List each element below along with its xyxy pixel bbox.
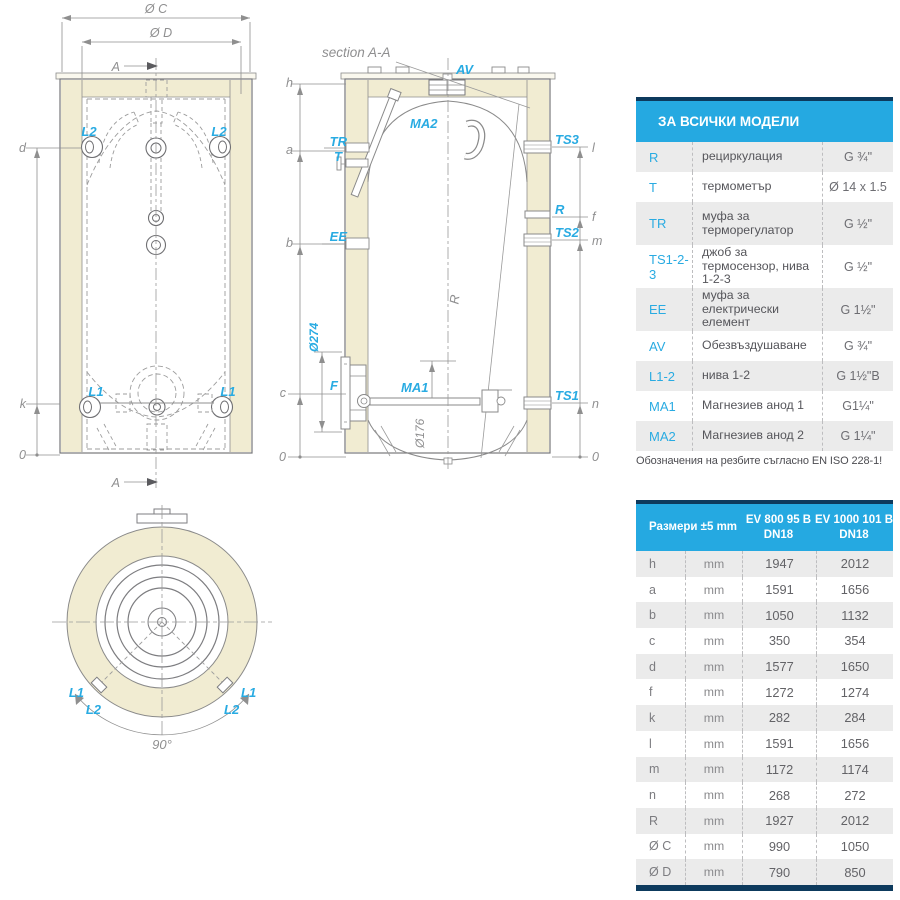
ts1-label: TS1	[555, 388, 579, 403]
value-ev1000: 850	[817, 859, 893, 885]
port-description: Магнезиев анод 1	[693, 391, 823, 421]
port-bottom-center-bore	[154, 404, 161, 411]
table-row: R рециркулация G ¾"	[636, 142, 893, 172]
port-thread-size: G ¾"	[823, 142, 893, 172]
table-row: T термометър Ø 14 x 1.5	[636, 172, 893, 202]
value-ev1000: 1656	[817, 731, 893, 757]
arrow	[297, 86, 303, 95]
port-description: нива 1-2	[693, 361, 823, 391]
ports-table-header: ЗА ВСИЧКИ МОДЕЛИ	[636, 101, 893, 142]
dim-f-label: f	[592, 210, 597, 224]
value-ev1000: 1050	[817, 834, 893, 860]
value-ev1000: 354	[817, 628, 893, 654]
dim-d-label: d	[19, 141, 27, 155]
dimension-unit: mm	[686, 628, 743, 654]
top-caps	[368, 67, 529, 73]
arrow	[34, 405, 40, 414]
dimension-letter: f	[636, 679, 686, 705]
dimension-unit: mm	[686, 782, 743, 808]
dim-176-label: Ø176	[413, 418, 427, 449]
arrow	[232, 39, 241, 45]
value-ev1000: 272	[817, 782, 893, 808]
dimension-letter: m	[636, 757, 686, 783]
port-thread-size: G1¼"	[823, 391, 893, 421]
dim-dot	[298, 455, 301, 458]
table-row: TR муфа за терморегулатор G ½"	[636, 202, 893, 245]
header-model-ev1000: EV 1000 101 B DN18	[815, 504, 893, 551]
dim-b-label: b	[286, 236, 293, 250]
port-thread-size: Ø 14 x 1.5	[823, 172, 893, 202]
section-title: section A-A	[322, 45, 391, 60]
port-thread-size: G ¾"	[823, 331, 893, 361]
value-ev800: 1050	[743, 602, 817, 628]
dimension-letter: a	[636, 577, 686, 603]
thread-standard-note: Обозначения на резбите съгласно EN ISO 2…	[636, 455, 882, 467]
port-thread-size: G ½"	[823, 245, 893, 288]
ts3-label: TS3	[555, 132, 580, 147]
pocket-body	[482, 390, 498, 412]
table-row: EE муфа за електрически елемент G 1½"	[636, 288, 893, 331]
port-code: MA2	[636, 421, 693, 451]
table-row: b mm 1050 1132	[636, 602, 893, 628]
dim-m-label: m	[592, 234, 602, 248]
table-row: AV Обезвъздушаване G ¾"	[636, 331, 893, 361]
table-row: a mm 1591 1656	[636, 577, 893, 603]
header-dimensions: Размери ±5 mm	[636, 504, 742, 551]
tr-flange	[346, 143, 369, 152]
insulation-left	[61, 80, 82, 452]
section-label-top: A	[111, 60, 120, 74]
dim-dot	[578, 455, 581, 458]
value-ev800: 282	[743, 705, 817, 731]
dimensions-table-body: h mm 1947 2012 a mm 1591 1656 b mm 1050 …	[636, 551, 893, 885]
ma2-label: MA2	[410, 116, 438, 131]
port-l1-left-bore	[84, 401, 92, 413]
port-description: рециркулация	[693, 142, 823, 172]
arrow	[319, 421, 325, 430]
arrow	[297, 396, 303, 405]
value-ev800: 1927	[743, 808, 817, 834]
dim-zero-right-label: 0	[592, 450, 599, 464]
cap	[518, 67, 529, 73]
ts2-flange	[524, 234, 551, 246]
table-row: Ø D mm 790 850	[636, 859, 893, 885]
t-label: T	[334, 149, 343, 164]
f-label: F	[330, 378, 339, 393]
port-thread-size: G ½"	[823, 202, 893, 245]
value-ev800: 268	[743, 782, 817, 808]
table-row: k mm 282 284	[636, 705, 893, 731]
value-ev1000: 1656	[817, 577, 893, 603]
l2-label-right: L2	[211, 124, 227, 139]
table-row: c mm 350 354	[636, 628, 893, 654]
arrow	[82, 39, 91, 45]
l2-label-left: L2	[81, 124, 97, 139]
l1-label-right: L1	[241, 685, 256, 700]
av-cap	[443, 74, 452, 80]
port-description: джоб за термосензор, нива 1-2-3	[693, 245, 823, 288]
value-ev1000: 1174	[817, 757, 893, 783]
table-row: MA2 Магнезиев анод 2 G 1¼"	[636, 421, 893, 451]
l1-label-left: L1	[69, 685, 84, 700]
table-bottom-bar	[636, 885, 893, 891]
dim-n-label: n	[592, 397, 599, 411]
header-model-ev800: EV 800 95 B DN18	[742, 504, 815, 551]
f-flange-body	[350, 365, 366, 421]
port-description: Магнезиев анод 2	[693, 421, 823, 451]
table-row: n mm 268 272	[636, 782, 893, 808]
av-label: AV	[455, 62, 474, 77]
value-ev800: 990	[743, 834, 817, 860]
dimension-unit: mm	[686, 577, 743, 603]
value-ev1000: 2012	[817, 551, 893, 577]
ee-flange	[346, 238, 369, 249]
l2-label-left: L2	[86, 702, 102, 717]
port-code: MA1	[636, 391, 693, 421]
ts2-label: TS2	[555, 225, 580, 240]
value-ev800: 1577	[743, 654, 817, 680]
arrow	[297, 153, 303, 162]
l1-label-right: L1	[220, 384, 235, 399]
r-flange	[525, 211, 550, 218]
dimension-letter: n	[636, 782, 686, 808]
port-thread-size: G 1¼"	[823, 421, 893, 451]
dimension-unit: mm	[686, 679, 743, 705]
front-view: Ø C Ø D A A L2 L2 L1 L1 d k 0	[19, 2, 256, 490]
table-row: L1-2 нива 1-2 G 1½"B	[636, 361, 893, 391]
value-ev800: 1172	[743, 757, 817, 783]
table-row: d mm 1577 1650	[636, 654, 893, 680]
arrow	[34, 149, 40, 158]
ma1-rod	[370, 398, 480, 405]
value-ev800: 1591	[743, 577, 817, 603]
value-ev800: 1272	[743, 679, 817, 705]
dimension-letter: R	[636, 808, 686, 834]
port-code: TS1-2-3	[636, 245, 693, 288]
ee-label: EE	[330, 229, 348, 244]
dimension-letter: b	[636, 602, 686, 628]
ma1-cap-bore	[361, 398, 367, 404]
ts3-flange	[524, 141, 551, 153]
port-code: R	[636, 142, 693, 172]
table-row: MA1 Магнезиев анод 1 G1¼"	[636, 391, 893, 421]
l2-label-right: L2	[224, 702, 240, 717]
port-l2-left-bore	[86, 141, 94, 153]
ports-table-title: ЗА ВСИЧКИ МОДЕЛИ	[658, 114, 799, 129]
value-ev1000: 1274	[817, 679, 893, 705]
dimension-unit: mm	[686, 551, 743, 577]
cap	[492, 67, 505, 73]
dim-c-label: c	[280, 386, 287, 400]
table-row: h mm 1947 2012	[636, 551, 893, 577]
arrow	[577, 405, 583, 414]
value-ev1000: 1650	[817, 654, 893, 680]
value-ev800: 350	[743, 628, 817, 654]
port-code: EE	[636, 288, 693, 331]
value-ev800: 1947	[743, 551, 817, 577]
value-ev800: 1591	[743, 731, 817, 757]
dimension-unit: mm	[686, 834, 743, 860]
table-row: l mm 1591 1656	[636, 731, 893, 757]
dim-a-label: a	[286, 143, 293, 157]
table-row: Ø C mm 990 1050	[636, 834, 893, 860]
port-code: T	[636, 172, 693, 202]
port-l2-right-bore	[219, 141, 227, 153]
section-view: section A-A	[279, 45, 602, 472]
table-row: R mm 1927 2012	[636, 808, 893, 834]
section-label-bottom: A	[111, 476, 120, 490]
arrow	[319, 354, 325, 363]
dim-l-label: l	[592, 141, 596, 155]
ports-table: ЗА ВСИЧКИ МОДЕЛИ R рециркулация G ¾" T т…	[636, 97, 893, 451]
port-l1-right-bore	[221, 401, 229, 413]
ts1-flange	[524, 397, 551, 409]
dim-od-label: Ø D	[149, 26, 172, 40]
port-thread-size: G 1½"	[823, 288, 893, 331]
dimension-unit: mm	[686, 731, 743, 757]
pocket-eye	[497, 397, 505, 405]
value-ev1000: 284	[817, 705, 893, 731]
value-ev1000: 2012	[817, 808, 893, 834]
l1-label-left: L1	[88, 384, 103, 399]
port-description: муфа за терморегулатор	[693, 202, 823, 245]
arrow	[62, 15, 71, 21]
table-row: f mm 1272 1274	[636, 679, 893, 705]
ports-table-body: R рециркулация G ¾" T термометър Ø 14 x …	[636, 142, 893, 451]
dimension-letter: k	[636, 705, 686, 731]
dimension-letter: h	[636, 551, 686, 577]
tr-label: TR	[330, 134, 348, 149]
port-description: термометър	[693, 172, 823, 202]
insulation-right	[527, 80, 549, 452]
angle-label: 90°	[152, 737, 172, 752]
dimension-letter: Ø C	[636, 834, 686, 860]
dim-274-label: Ø274	[307, 322, 321, 352]
ma1-label: MA1	[401, 380, 428, 395]
port-description: муфа за електрически елемент	[693, 288, 823, 331]
r-dim-label: R	[447, 294, 463, 305]
f-flange-plate	[341, 357, 350, 429]
dimension-unit: mm	[686, 757, 743, 783]
dim-h-label: h	[286, 76, 293, 90]
dim-dot	[35, 453, 38, 456]
dimension-letter: c	[636, 628, 686, 654]
dim-zero-label: 0	[19, 448, 26, 462]
cap	[396, 67, 409, 73]
port-description: Обезвъздушаване	[693, 331, 823, 361]
technical-drawing: Ø C Ø D A A L2 L2 L1 L1 d k 0 section A-…	[0, 0, 636, 900]
dimension-unit: mm	[686, 602, 743, 628]
dimension-letter: Ø D	[636, 859, 686, 885]
value-ev1000: 1132	[817, 602, 893, 628]
table-row: TS1-2-3 джоб за термосензор, нива 1-2-3 …	[636, 245, 893, 288]
dimension-unit: mm	[686, 808, 743, 834]
arrow	[577, 242, 583, 251]
dimension-unit: mm	[686, 705, 743, 731]
dimensions-table: Размери ±5 mm EV 800 95 B DN18 EV 1000 1…	[636, 500, 893, 891]
arrow	[577, 149, 583, 158]
port-code: L1-2	[636, 361, 693, 391]
value-ev800: 790	[743, 859, 817, 885]
arrow	[241, 15, 250, 21]
r-port-label: R	[555, 202, 565, 217]
dim-zero-left-label: 0	[279, 450, 286, 464]
arrow	[297, 246, 303, 255]
port-code: AV	[636, 331, 693, 361]
dimension-letter: l	[636, 731, 686, 757]
dimension-letter: d	[636, 654, 686, 680]
dimension-unit: mm	[686, 859, 743, 885]
dimensions-table-header: Размери ±5 mm EV 800 95 B DN18 EV 1000 1…	[636, 504, 893, 551]
table-row: m mm 1172 1174	[636, 757, 893, 783]
top-view: L1 L1 L2 L2 90°	[52, 505, 272, 752]
port-thread-size: G 1½"B	[823, 361, 893, 391]
t-flange	[346, 159, 368, 167]
dimension-unit: mm	[686, 654, 743, 680]
port-code: TR	[636, 202, 693, 245]
datasheet-page: Ø C Ø D A A L2 L2 L1 L1 d k 0 section A-…	[0, 0, 900, 900]
dim-k-label: k	[20, 397, 27, 411]
dim-oc-label: Ø C	[144, 2, 168, 16]
cap	[368, 67, 381, 73]
